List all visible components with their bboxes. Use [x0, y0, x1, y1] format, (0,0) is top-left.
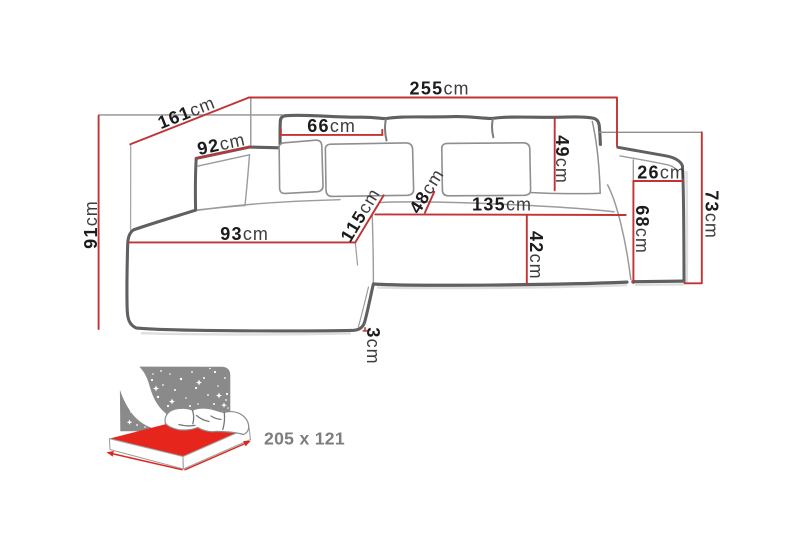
svg-text:205 x 121: 205 x 121: [264, 428, 345, 448]
svg-text:49cm: 49cm: [552, 135, 572, 184]
svg-text:93cm: 93cm: [220, 224, 269, 244]
svg-text:42cm: 42cm: [526, 231, 546, 280]
svg-text:135cm: 135cm: [472, 195, 532, 215]
svg-text:91cm: 91cm: [81, 200, 101, 249]
svg-text:68cm: 68cm: [632, 205, 652, 254]
svg-text:66cm: 66cm: [307, 116, 356, 136]
svg-text:3cm: 3cm: [363, 327, 383, 364]
svg-text:73cm: 73cm: [702, 190, 722, 239]
svg-text:26cm: 26cm: [637, 163, 686, 183]
svg-text:255cm: 255cm: [410, 79, 470, 99]
